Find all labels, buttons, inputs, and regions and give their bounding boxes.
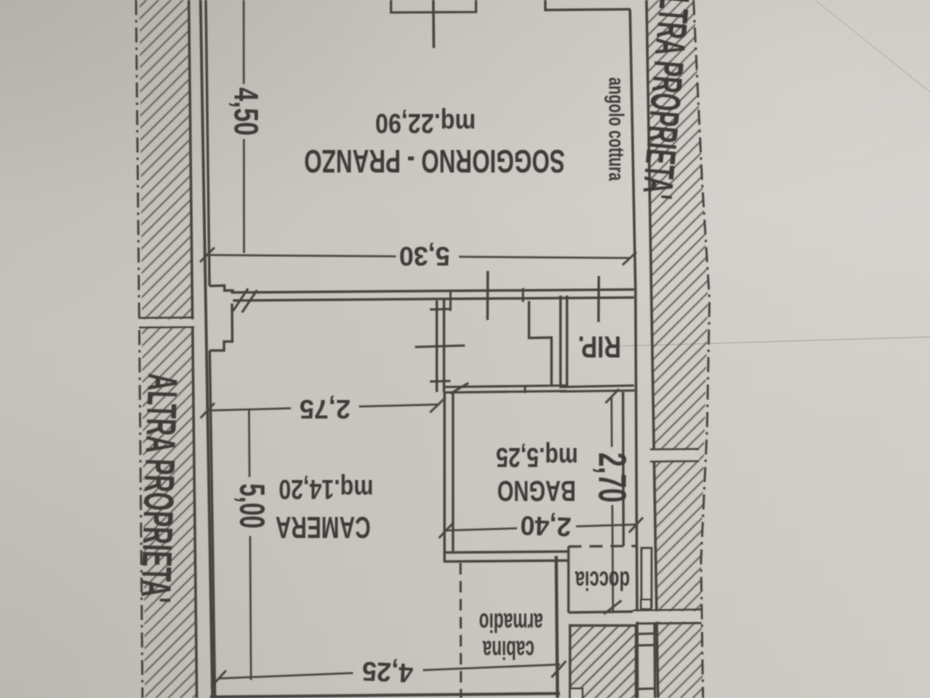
- svg-text:2,70: 2,70: [590, 452, 634, 502]
- svg-text:5,30: 5,30: [399, 241, 450, 271]
- svg-text:4,50: 4,50: [227, 87, 265, 135]
- svg-text:armadio: armadio: [479, 607, 543, 637]
- svg-text:mq.5,25: mq.5,25: [496, 441, 578, 472]
- svg-text:ALTRA PROPRIETA': ALTRA PROPRIETA': [131, 373, 185, 604]
- svg-text:RIP.: RIP.: [578, 330, 621, 365]
- svg-text:5,00: 5,00: [232, 484, 271, 529]
- svg-text:mq.14,20: mq.14,20: [279, 473, 374, 504]
- svg-text:2,40: 2,40: [520, 510, 572, 542]
- svg-text:2,75: 2,75: [299, 394, 350, 424]
- svg-text:SOGGIORNO - PRANZO: SOGGIORNO - PRANZO: [304, 143, 565, 179]
- svg-text:CAMERA: CAMERA: [275, 510, 370, 545]
- svg-text:BAGNO: BAGNO: [497, 474, 576, 506]
- svg-text:doccia: doccia: [575, 566, 630, 597]
- svg-text:4,25: 4,25: [361, 656, 413, 689]
- svg-text:mq.22,90: mq.22,90: [375, 108, 476, 138]
- svg-text:cabina: cabina: [482, 635, 535, 664]
- svg-text:angolo cottura: angolo cottura: [604, 77, 627, 181]
